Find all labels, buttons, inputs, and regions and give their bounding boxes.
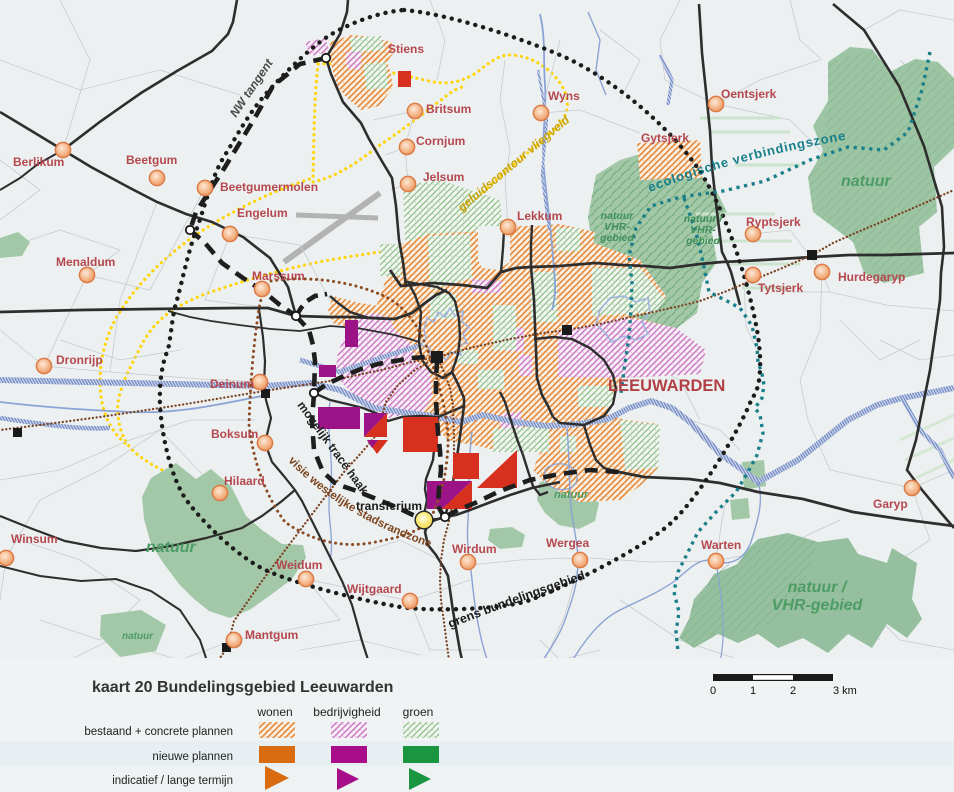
svg-text:Dronrijp: Dronrijp: [56, 353, 103, 367]
svg-text:Garyp: Garyp: [873, 497, 908, 511]
svg-text:Wirdum: Wirdum: [452, 542, 497, 556]
svg-text:Beetgum: Beetgum: [126, 153, 177, 167]
svg-text:natuur: natuur: [554, 489, 589, 501]
svg-text:Berlikum: Berlikum: [13, 155, 64, 169]
svg-text:Warten: Warten: [701, 538, 741, 552]
svg-text:Winsum: Winsum: [11, 532, 58, 546]
svg-text:Deinum: Deinum: [210, 377, 254, 391]
svg-text:Stiens: Stiens: [388, 42, 424, 56]
svg-text:Cornjum: Cornjum: [416, 134, 465, 148]
svg-text:Engelum: Engelum: [237, 206, 288, 220]
svg-text:nieuwe plannen: nieuwe plannen: [152, 751, 233, 763]
svg-text:Tytsjerk: Tytsjerk: [758, 281, 803, 295]
svg-text:Lekkum: Lekkum: [517, 209, 562, 223]
svg-text:Beetgumermolen: Beetgumermolen: [220, 180, 318, 194]
svg-text:Britsum: Britsum: [426, 102, 471, 116]
svg-text:kaart 20 Bundelingsgebied Leeu: kaart 20 Bundelingsgebied Leeuwarden: [92, 679, 393, 696]
svg-text:3 km: 3 km: [833, 685, 857, 697]
svg-text:bestaand + concrete plannen: bestaand + concrete plannen: [84, 726, 233, 738]
svg-text:Weidum: Weidum: [276, 558, 322, 572]
svg-text:Boksum: Boksum: [211, 427, 258, 441]
svg-text:1: 1: [750, 685, 756, 697]
svg-text:Marssum: Marssum: [252, 269, 305, 283]
svg-text:LEEUWARDEN: LEEUWARDEN: [608, 377, 725, 395]
svg-text:Wergea: Wergea: [546, 536, 589, 550]
svg-text:Oentsjerk: Oentsjerk: [721, 87, 777, 101]
svg-text:VHR-gebied: VHR-gebied: [772, 597, 864, 614]
svg-text:0: 0: [710, 685, 716, 697]
svg-text:Mantgum: Mantgum: [245, 628, 298, 642]
svg-text:Menaldum: Menaldum: [56, 255, 115, 269]
svg-text:Wyns: Wyns: [548, 89, 580, 103]
svg-text:groen: groen: [403, 705, 434, 719]
svg-text:wonen: wonen: [256, 705, 292, 719]
svg-text:Jelsum: Jelsum: [423, 170, 464, 184]
svg-text:indicatief / lange termijn: indicatief / lange termijn: [112, 775, 233, 787]
svg-text:Gytsjerk: Gytsjerk: [641, 131, 689, 145]
svg-text:transferium: transferium: [356, 499, 422, 513]
svg-text:gebied: gebied: [599, 232, 634, 244]
svg-text:Hurdegaryp: Hurdegaryp: [838, 270, 905, 284]
svg-text:Hilaard: Hilaard: [224, 474, 265, 488]
svg-text:Ryptsjerk: Ryptsjerk: [746, 215, 801, 229]
svg-text:natuur /: natuur /: [788, 579, 848, 596]
svg-text:gebied: gebied: [685, 235, 720, 247]
svg-text:2: 2: [790, 685, 796, 697]
svg-text:natuur: natuur: [841, 173, 892, 190]
svg-text:natuur: natuur: [146, 539, 197, 556]
svg-text:natuur: natuur: [122, 631, 154, 642]
svg-text:Wijtgaard: Wijtgaard: [347, 582, 402, 596]
svg-text:bedrijvigheid: bedrijvigheid: [313, 705, 380, 719]
